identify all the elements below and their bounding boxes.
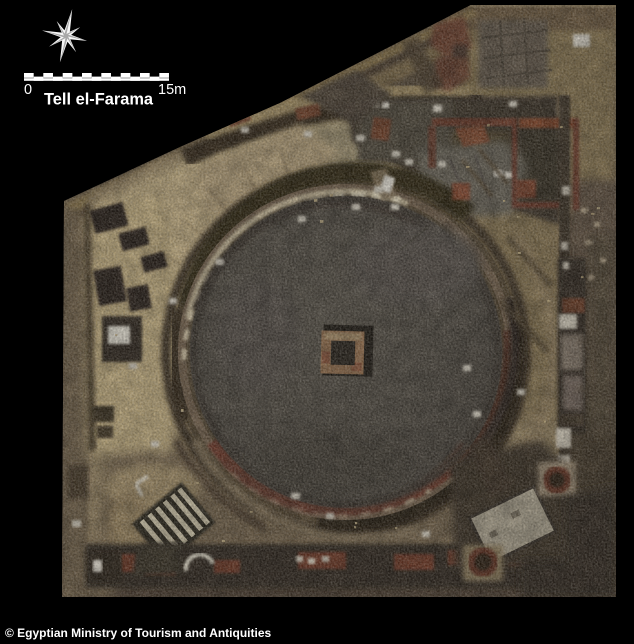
svg-text:Tell el-Farama: Tell el-Farama xyxy=(44,91,154,109)
svg-text:© Egyptian Ministry of Tourism: © Egyptian Ministry of Tourism and Antiq… xyxy=(5,626,272,640)
svg-text:0: 0 xyxy=(24,82,32,98)
svg-text:15m: 15m xyxy=(158,82,186,98)
